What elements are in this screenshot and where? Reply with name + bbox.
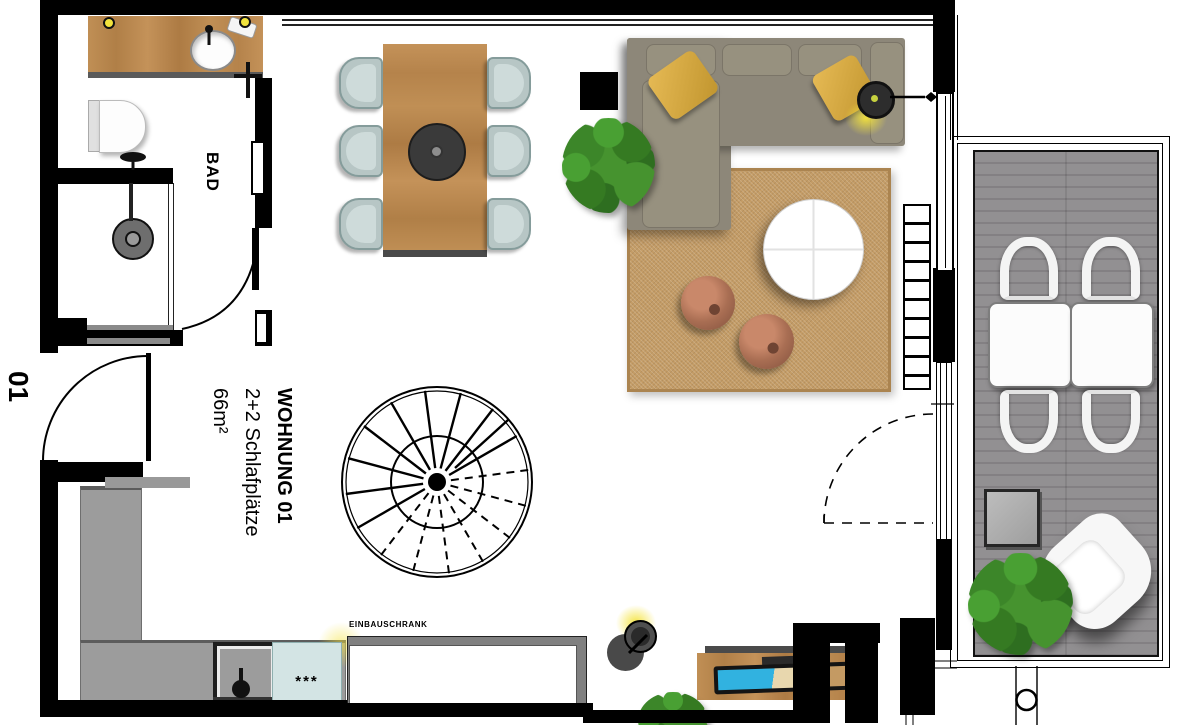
wall-lamp-mount [925,92,937,102]
stair-treads-solid [346,391,517,528]
floor-lamp-stem [629,635,647,653]
floor-plan: *** [0,0,1179,725]
apartment-area: 66m² [204,388,236,536]
apartment-title-block: WOHNUNG 01 2+2 Schlafplätze 66m² [204,388,300,536]
apartment-capacity: 2+2 Schlafplätze [236,388,268,536]
bathroom-door-swing [182,252,256,329]
apartment-name: WOHNUNG 01 [268,388,300,536]
linework-overlay [0,0,1179,725]
unit-number-label: 01 [2,371,34,402]
closet-label: EINBAUSCHRANK [349,620,427,629]
shower-valve [120,152,146,162]
spiral-staircase [342,387,532,577]
balcony-door-swing [824,414,933,523]
balcony-drain [1016,666,1037,725]
exterior-outline [906,15,958,725]
bathroom-label: BAD [202,152,222,192]
entrance-door-swing [43,356,148,461]
bathroom-door [182,228,259,329]
entrance-door [43,353,151,461]
